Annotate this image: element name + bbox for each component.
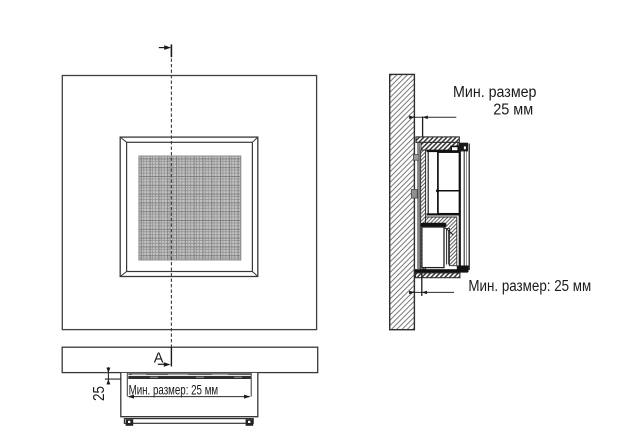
svg-text:Мин. размер: Мин. размер <box>453 84 537 101</box>
svg-text:25: 25 <box>91 386 108 401</box>
svg-text:Мин. размер: 25 мм: Мин. размер: 25 мм <box>468 278 591 295</box>
svg-text:Мин. размер: 25 мм: Мин. размер: 25 мм <box>129 381 219 397</box>
svg-text:25 мм: 25 мм <box>493 102 533 119</box>
